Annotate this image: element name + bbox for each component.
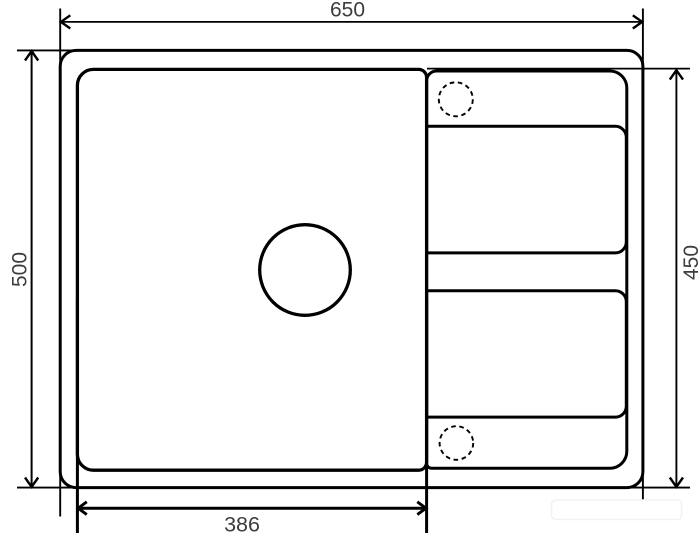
svg-text:650: 650 bbox=[330, 0, 365, 22]
svg-text:500: 500 bbox=[8, 252, 31, 287]
svg-text:450: 450 bbox=[680, 245, 700, 280]
svg-text:386: 386 bbox=[224, 513, 260, 533]
